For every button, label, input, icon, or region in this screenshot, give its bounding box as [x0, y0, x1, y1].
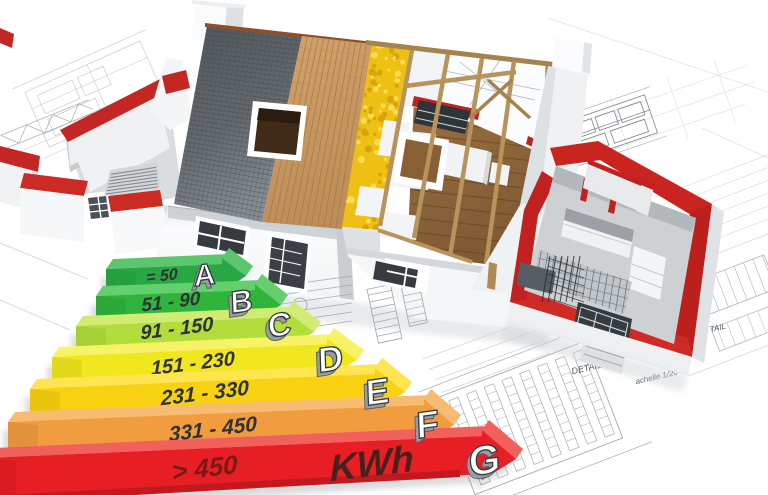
- svg-text:B: B: [230, 282, 253, 320]
- svg-text:A: A: [193, 257, 216, 293]
- svg-text:E: E: [365, 369, 390, 413]
- svg-text:G: G: [468, 435, 501, 486]
- svg-text:F: F: [416, 401, 440, 446]
- svg-text:D: D: [317, 338, 343, 381]
- svg-text:C: C: [267, 305, 292, 345]
